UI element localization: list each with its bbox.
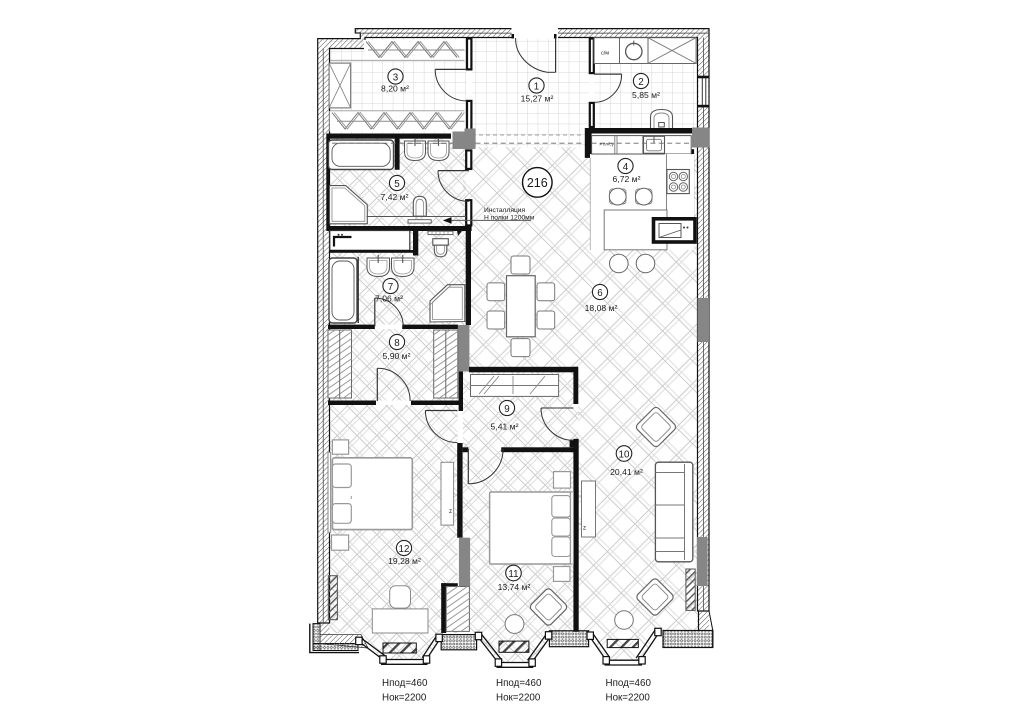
- svg-text:6: 6: [597, 288, 603, 299]
- svg-text:216: 216: [527, 176, 548, 190]
- svg-text:7,06 м²: 7,06 м²: [375, 294, 403, 304]
- svg-text:Нпод=460: Нпод=460: [382, 678, 428, 689]
- svg-text:2: 2: [638, 77, 643, 88]
- svg-text:Нпод=460: Нпод=460: [496, 678, 542, 689]
- svg-text:13,74 м²: 13,74 м²: [498, 582, 531, 592]
- svg-text:Нок=2200: Нок=2200: [496, 693, 541, 704]
- svg-text:6,72 м²: 6,72 м²: [613, 174, 641, 184]
- svg-text:20,41 м²: 20,41 м²: [610, 467, 643, 477]
- svg-text:Нок=2200: Нок=2200: [606, 693, 651, 704]
- svg-text:z: z: [449, 509, 452, 515]
- svg-text:4: 4: [623, 162, 629, 173]
- svg-text:7: 7: [388, 282, 393, 293]
- svg-text:5,41 м²: 5,41 м²: [491, 422, 519, 432]
- svg-text:3: 3: [393, 72, 399, 83]
- svg-text:×: ×: [599, 142, 602, 148]
- svg-text:с/м: с/м: [601, 51, 609, 57]
- svg-text:пл/су: пл/су: [603, 142, 615, 147]
- svg-text:18,08 м²: 18,08 м²: [585, 303, 618, 313]
- svg-text:5: 5: [394, 179, 400, 190]
- svg-text:7,42 м²: 7,42 м²: [381, 192, 409, 202]
- svg-text:1: 1: [534, 81, 539, 92]
- svg-text:5,85 м²: 5,85 м²: [632, 90, 660, 100]
- svg-text:Нпод=460: Нпод=460: [606, 678, 652, 689]
- svg-text:19,28 м²: 19,28 м²: [388, 556, 421, 566]
- svg-text:Инсталляция: Инсталляция: [484, 207, 526, 214]
- svg-text:9: 9: [504, 404, 509, 415]
- svg-text:8,20 м²: 8,20 м²: [381, 84, 409, 94]
- svg-text:11: 11: [508, 569, 518, 580]
- svg-text:z: z: [460, 526, 463, 532]
- svg-text:12: 12: [399, 544, 410, 555]
- svg-text:Нок=2200: Нок=2200: [382, 693, 427, 704]
- svg-text:5,90 м²: 5,90 м²: [383, 351, 411, 361]
- svg-text:15,27 м²: 15,27 м²: [521, 94, 554, 104]
- svg-text:Н полки 1200мм: Н полки 1200мм: [484, 214, 535, 221]
- svg-text:z: z: [583, 526, 586, 532]
- svg-text:10: 10: [619, 449, 630, 460]
- svg-text:8: 8: [394, 338, 400, 349]
